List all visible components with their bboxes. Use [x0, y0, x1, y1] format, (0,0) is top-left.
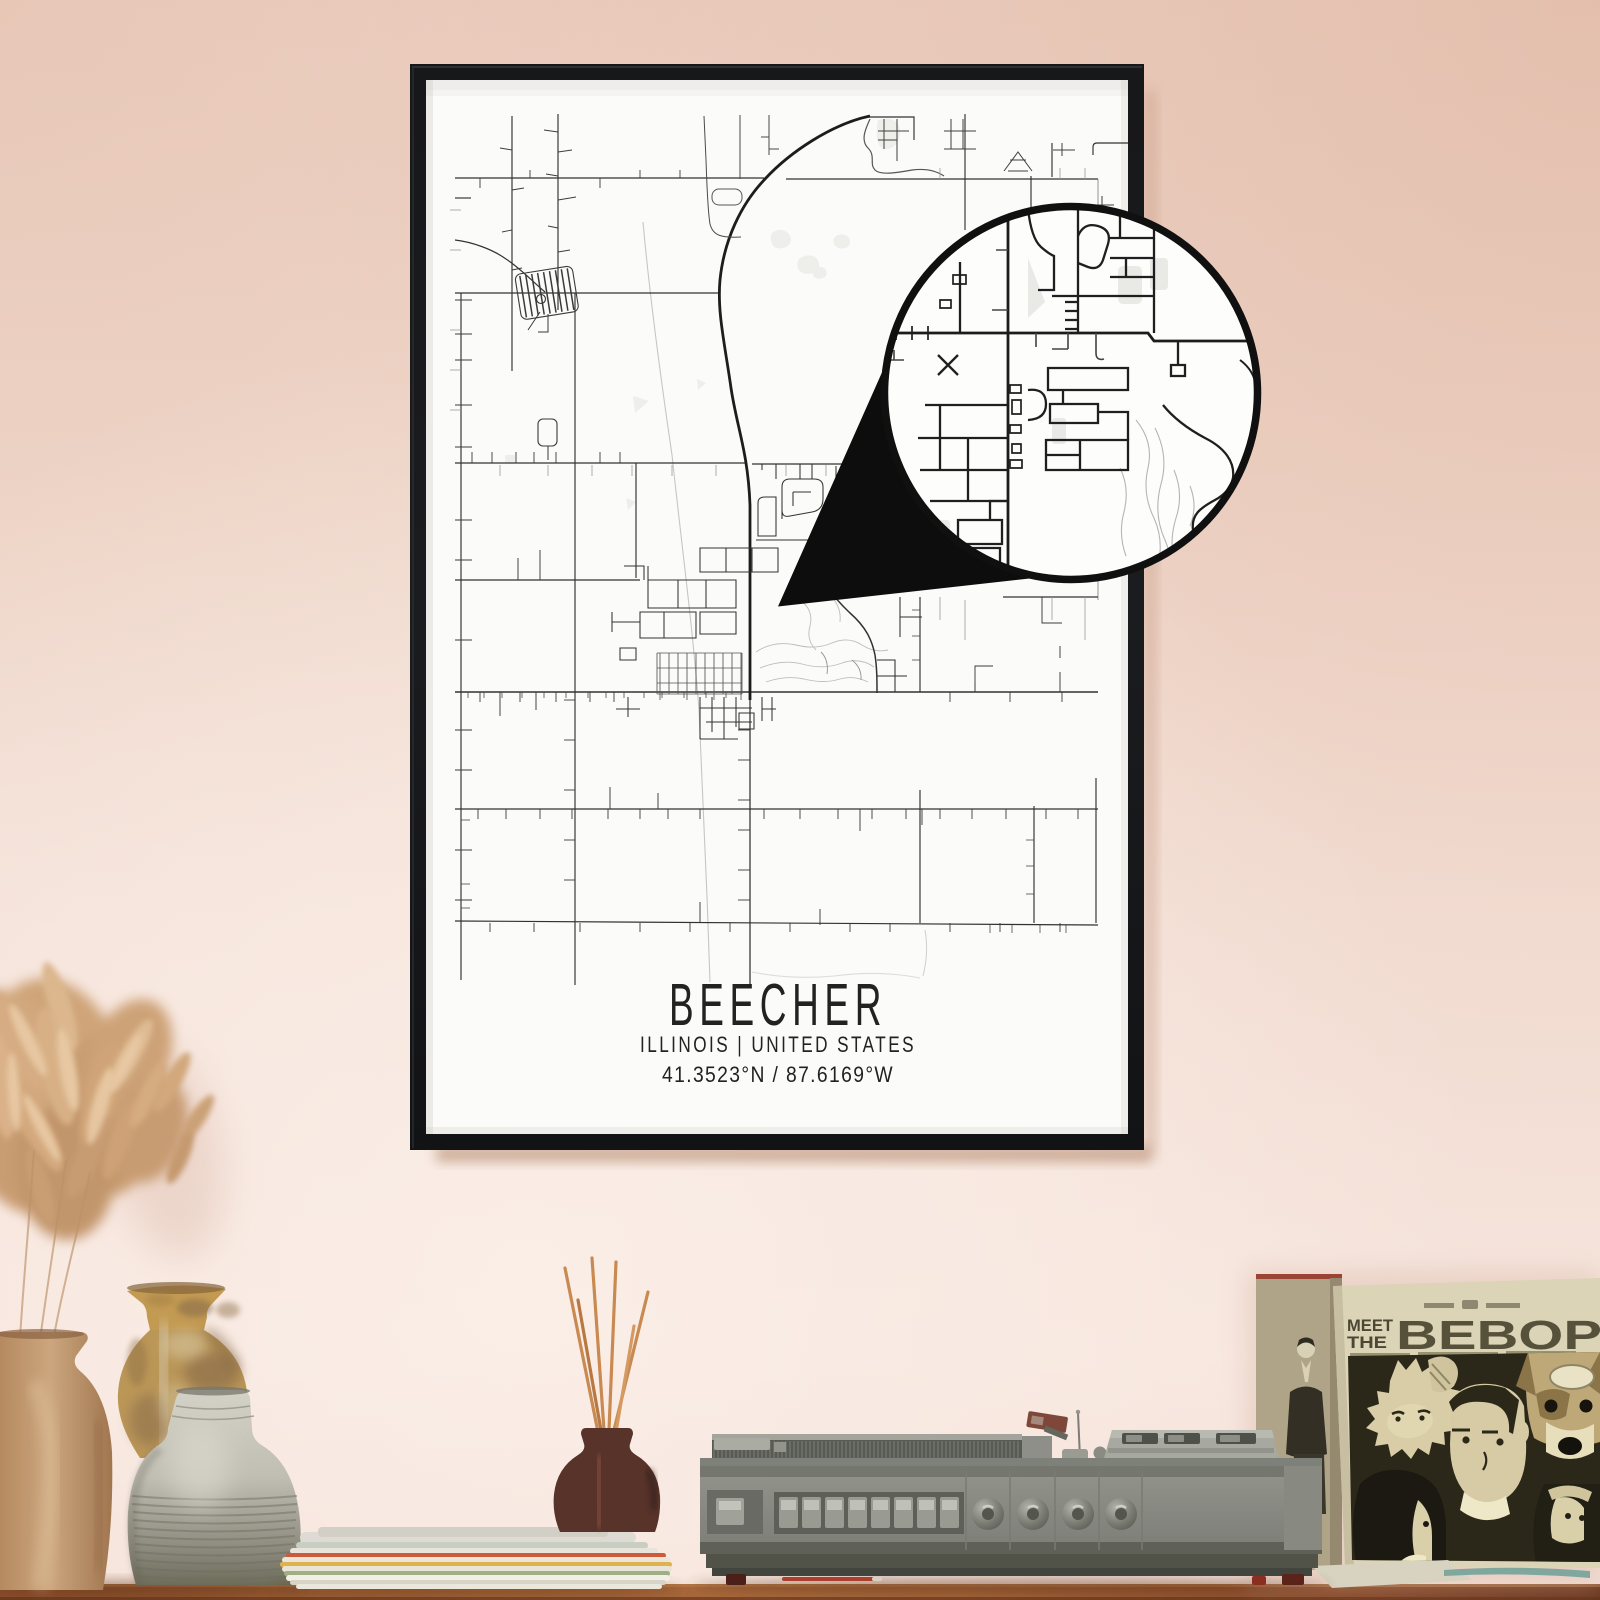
svg-text:THE: THE	[1347, 1333, 1387, 1352]
svg-text:BEECHER: BEECHER	[669, 971, 887, 1038]
svg-text:ILLINOIS | UNITED STATES: ILLINOIS | UNITED STATES	[640, 1032, 916, 1057]
svg-text:41.3523°N / 87.6169°W: 41.3523°N / 87.6169°W	[662, 1062, 894, 1087]
